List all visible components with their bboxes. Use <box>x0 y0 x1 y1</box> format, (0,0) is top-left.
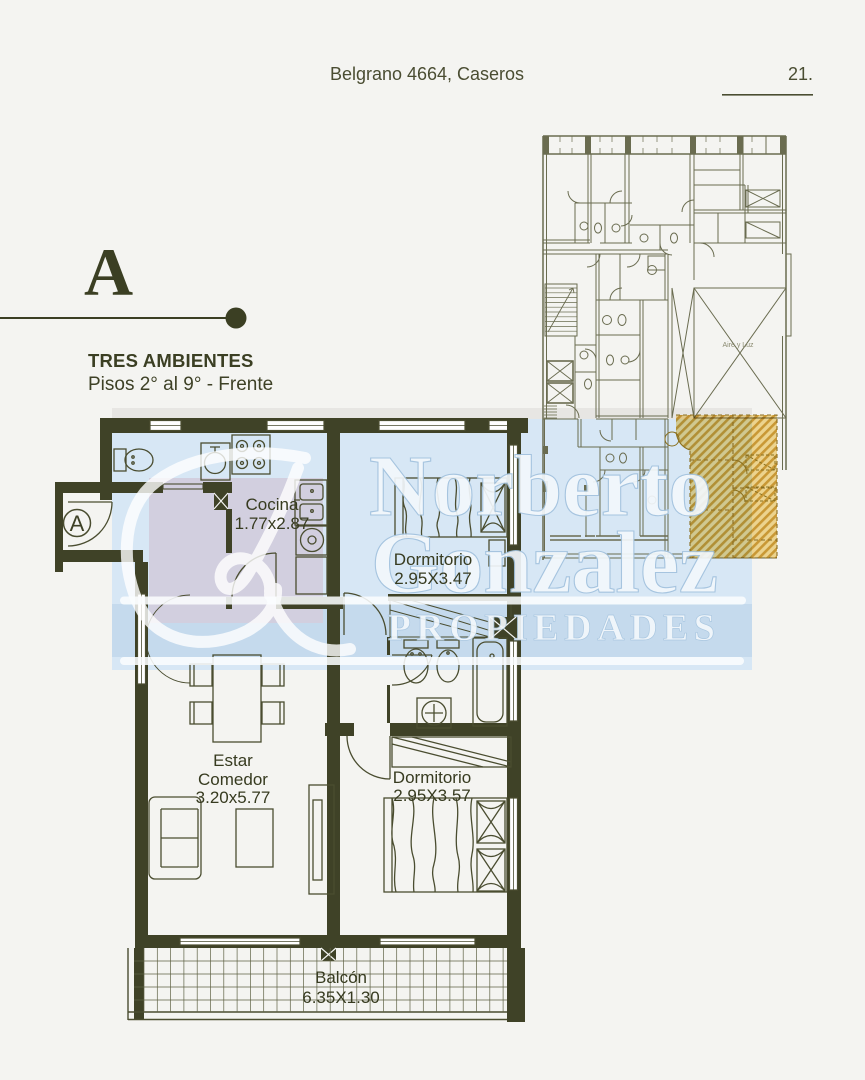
svg-text:Dormitorio: Dormitorio <box>394 550 472 569</box>
svg-text:2.95X3.47: 2.95X3.47 <box>394 569 472 588</box>
svg-text:PROPIEDADES: PROPIEDADES <box>388 607 721 649</box>
svg-text:3.20x5.77: 3.20x5.77 <box>196 788 271 807</box>
svg-text:Comedor: Comedor <box>198 770 268 789</box>
svg-text:6.35X1.30: 6.35X1.30 <box>302 988 380 1007</box>
svg-text:21.: 21. <box>788 64 813 84</box>
svg-text:Belgrano 4664, Caseros: Belgrano 4664, Caseros <box>330 64 524 84</box>
svg-text:A: A <box>84 234 133 310</box>
svg-text:Balcón: Balcón <box>315 968 367 987</box>
svg-text:Dormitorio: Dormitorio <box>393 768 471 787</box>
svg-text:2.95X3.57: 2.95X3.57 <box>393 786 471 805</box>
svg-text:A: A <box>70 511 85 536</box>
svg-text:Cocina: Cocina <box>246 495 299 514</box>
svg-text:TRES AMBIENTES: TRES AMBIENTES <box>88 350 254 371</box>
svg-text:Estar: Estar <box>213 751 253 770</box>
svg-text:1.77x2.87: 1.77x2.87 <box>235 514 310 533</box>
svg-text:Pisos 2° al 9° - Frente: Pisos 2° al 9° - Frente <box>88 374 273 395</box>
svg-text:Aire y Luz: Aire y Luz <box>722 342 754 349</box>
